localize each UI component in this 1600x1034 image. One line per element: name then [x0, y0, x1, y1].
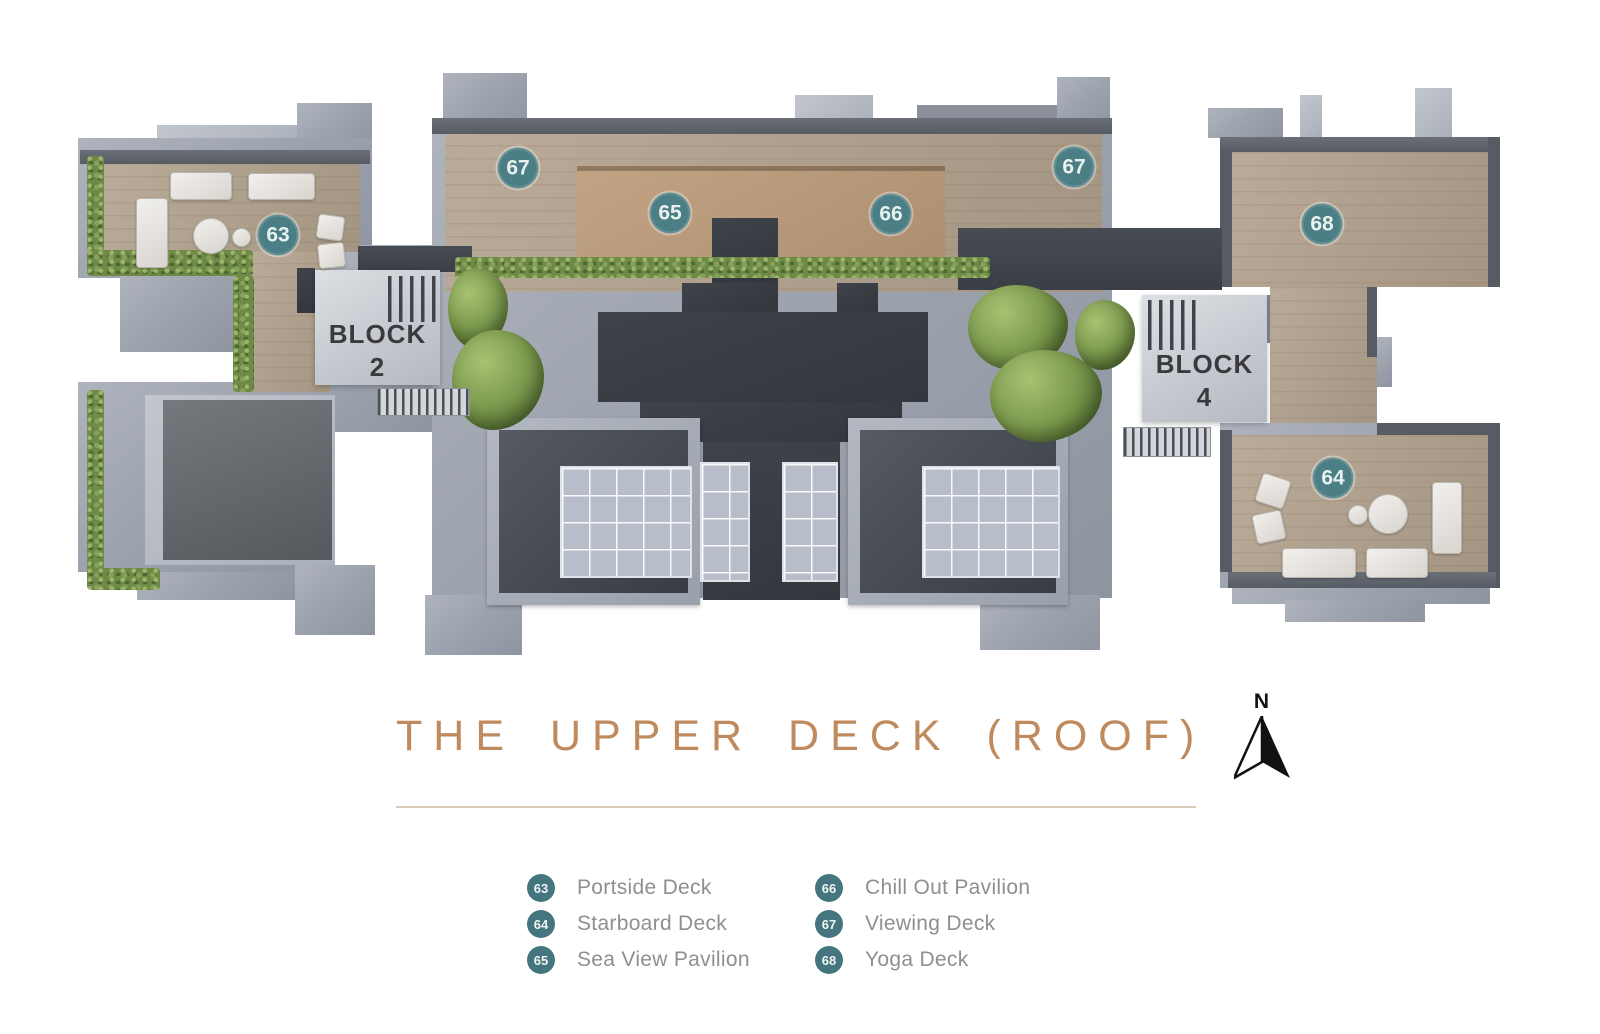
legend-column-1: 63 Portside Deck 64 Starboard Deck 65 Se… [527, 874, 750, 974]
left-terrace-inner [163, 400, 332, 560]
furniture-side-table [232, 228, 251, 247]
marker-67-left: 67 [498, 148, 539, 189]
right-dark-roof-band [958, 228, 1222, 290]
starboard-edge-right [1488, 423, 1500, 588]
skylight-right-glass [922, 466, 1060, 578]
legend-badge-63: 63 [527, 874, 555, 902]
block2-louver-hatch [377, 388, 470, 416]
skylight-left-glass [560, 466, 692, 578]
legend-badge-67-number: 67 [822, 917, 836, 932]
legend-badge-67: 67 [815, 910, 843, 938]
north-label: N [1232, 690, 1292, 714]
left-roof-parapet [80, 150, 370, 164]
right-parapet-tab-2 [1300, 95, 1322, 137]
core-roof-step-2b [837, 283, 878, 313]
legend-label: Yoga Deck [865, 948, 969, 972]
legend-badge-66-number: 66 [822, 881, 836, 896]
legend-badge-65: 65 [527, 946, 555, 974]
skylight-mid-glass-2 [782, 462, 838, 582]
tree-planter-right [1075, 300, 1135, 370]
marker-68: 68 [1302, 204, 1343, 245]
legend-column-2: 66 Chill Out Pavilion 67 Viewing Deck 68… [815, 874, 1030, 974]
right-notch-tab [1377, 337, 1392, 387]
left-terrace-apron [137, 572, 295, 600]
hedge-portside-corridor [233, 276, 254, 392]
furniture-lounge [1432, 482, 1462, 554]
block4-louver-hatch [1123, 427, 1211, 457]
legend-item-starboard-deck: 64 Starboard Deck [527, 910, 750, 938]
block2-stairs-hatch [388, 276, 438, 322]
legend-label: Viewing Deck [865, 912, 995, 936]
marker-63-number: 63 [266, 223, 289, 247]
legend-badge-65-number: 65 [534, 953, 548, 968]
left-roof-mid [120, 276, 233, 352]
marker-66: 66 [871, 194, 912, 235]
left-roof-vestibule [297, 268, 315, 313]
marker-68-number: 68 [1310, 212, 1333, 236]
north-compass: N [1232, 690, 1292, 780]
legend-item-chill-out-pavilion: 66 Chill Out Pavilion [815, 874, 1030, 902]
legend-badge-63-number: 63 [534, 881, 548, 896]
starboard-edge-left [1220, 430, 1232, 572]
furniture-armchair [315, 213, 345, 242]
furniture-side-table [1348, 505, 1368, 525]
legend-label: Starboard Deck [577, 912, 727, 936]
marker-65-number: 65 [658, 201, 681, 225]
block2-label-line1: BLOCK [315, 318, 440, 351]
starboard-parapet-top-right [1377, 423, 1500, 435]
block4-label-line1: BLOCK [1142, 348, 1267, 381]
marker-65: 65 [650, 193, 691, 234]
hedge-portside-bottom [87, 250, 253, 276]
yoga-deck-parapet-top [1220, 137, 1500, 152]
hedge-terrace-left [87, 390, 104, 582]
center-parapet-top [432, 118, 1112, 134]
block4-label: BLOCK 4 [1142, 348, 1267, 413]
furniture-sofa [1282, 548, 1356, 578]
legend-label: Portside Deck [577, 876, 712, 900]
marker-67-left-number: 67 [506, 156, 529, 180]
hedge-portside-left [87, 156, 104, 252]
marker-64: 64 [1313, 458, 1354, 499]
legend-item-sea-view-pavilion: 65 Sea View Pavilion [527, 946, 750, 974]
furniture-round-table [193, 218, 229, 254]
starboard-parapet-bottom [1228, 572, 1496, 588]
furniture-sofa [136, 198, 168, 268]
legend-badge-64: 64 [527, 910, 555, 938]
marker-63: 63 [258, 215, 299, 256]
block4-stairs-hatch [1148, 300, 1198, 350]
furniture-sofa [170, 172, 232, 200]
core-roof-step-2a [682, 283, 778, 313]
core-roof-wide-band [598, 312, 928, 402]
yoga-deck-floor [1232, 152, 1488, 287]
legend-badge-68: 68 [815, 946, 843, 974]
legend-item-viewing-deck: 67 Viewing Deck [815, 910, 1030, 938]
right-parapet-tab-3 [1415, 88, 1452, 137]
legend-item-portside-deck: 63 Portside Deck [527, 874, 750, 902]
hedge-canopy-strip [455, 257, 990, 278]
roof-plan: BLOCK 2 [0, 0, 1600, 680]
furniture-armchair [1251, 509, 1287, 545]
marker-67-right-number: 67 [1062, 155, 1085, 179]
legend-item-yoga-deck: 68 Yoga Deck [815, 946, 1030, 974]
marker-66-number: 66 [879, 202, 902, 226]
furniture-armchair [317, 242, 346, 270]
page-title: THE UPPER DECK (ROOF) [396, 712, 1196, 761]
furniture-sofa [248, 173, 315, 200]
starboard-apron-step [1285, 600, 1425, 622]
left-bottom-tab [295, 565, 375, 635]
skylight-mid-glass-1 [700, 462, 750, 582]
legend-badge-68-number: 68 [822, 953, 836, 968]
hedge-terrace-bottom [87, 568, 160, 590]
legend-label: Chill Out Pavilion [865, 876, 1030, 900]
block2-label-line2: 2 [315, 351, 440, 384]
north-arrow-icon [1234, 716, 1290, 780]
legend-badge-64-number: 64 [534, 917, 548, 932]
title-divider [396, 806, 1196, 808]
legend-label: Sea View Pavilion [577, 948, 750, 972]
furniture-sofa [1366, 548, 1428, 578]
corridor-edge-right [1367, 287, 1377, 357]
block2-label: BLOCK 2 [315, 318, 440, 383]
block4-label-line2: 4 [1142, 381, 1267, 414]
right-parapet-tab-1 [1208, 108, 1283, 138]
legend-badge-66: 66 [815, 874, 843, 902]
yoga-deck-edge-right [1488, 137, 1500, 287]
right-wing-corridor [1270, 287, 1377, 423]
marker-67-right: 67 [1054, 147, 1095, 188]
marker-64-number: 64 [1321, 466, 1344, 490]
furniture-round-table [1368, 494, 1408, 534]
